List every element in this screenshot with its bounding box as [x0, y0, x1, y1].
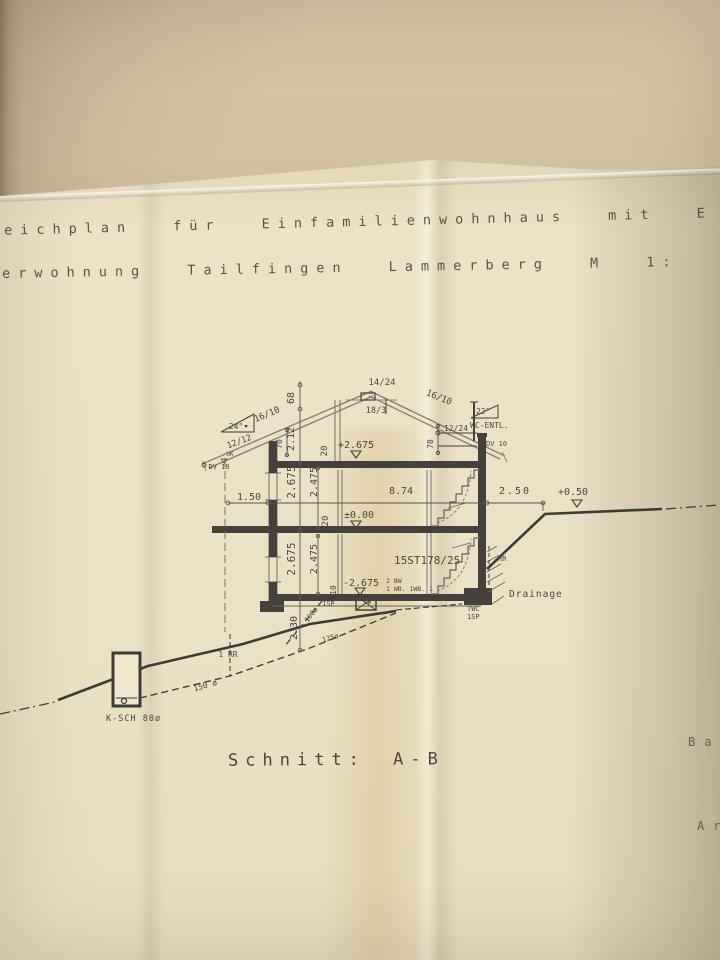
label-ridge-board: 18/3: [366, 406, 386, 416]
drawing-labels: 14/24 16/10 18/3 16/10 24° 12/12 22° WC-…: [106, 378, 588, 724]
label-level-terrain: +0.50: [558, 487, 588, 498]
label-dim-70-left: 70: [275, 439, 284, 449]
label-slab-20-upper: 20: [320, 446, 330, 457]
label-dim-68: 68: [286, 392, 297, 404]
label-dim-212: 2.12: [286, 427, 297, 451]
label-rafter-right: 16/10: [424, 388, 453, 407]
label-drainage: Drainage: [509, 589, 563, 600]
label-dim-150: 1.50: [237, 492, 261, 503]
label-stair-note: 15ST178/25: [394, 554, 460, 567]
label-note-wb: 1 WB. 1WB. 1: [386, 585, 433, 593]
label-roof-angle-right: 22°: [476, 407, 490, 416]
label-pipe-125: 125ø: [321, 632, 340, 645]
label-rr-left: 1 RR: [218, 650, 237, 659]
label-slab-10: 10: [329, 585, 338, 595]
label-rr-right: RR: [498, 555, 507, 563]
label-shaft: K-SCH 80ø: [106, 714, 161, 724]
label-clear-lower: 2.475: [309, 544, 320, 574]
label-pipe-150: 150 ø: [192, 678, 218, 693]
label-dim-230: 2.30: [289, 616, 300, 640]
label-uk-left: UK: [226, 451, 234, 458]
label-level-upper: +2.675: [338, 440, 374, 451]
section-drawing: 14/24 16/10 18/3 16/10 24° 12/12 22° WC-…: [0, 0, 720, 960]
label-storey-upper: 2.675: [285, 465, 298, 498]
label-level-zero: ±0.00: [344, 510, 374, 521]
label-note-sp-right: 1SP: [467, 613, 480, 621]
label-vent-pipe: WC-ENTL.: [470, 421, 509, 430]
label-rafter-left: 16/10: [253, 405, 282, 425]
label-storey-lower: 2.675: [285, 542, 298, 575]
label-dim-70-right: 70: [426, 439, 435, 449]
label-note-tw: TW: [364, 599, 372, 606]
label-note-bw: 2 BW: [386, 577, 402, 585]
label-note-twc: TWC: [467, 605, 480, 613]
label-clear-upper: 2.475: [309, 467, 320, 497]
label-dv10-right: DV 10: [486, 440, 507, 448]
label-dim-874: 8.74: [389, 486, 413, 497]
label-roof-angle-left: 24°: [229, 422, 243, 431]
inspection-shaft: [113, 653, 140, 706]
label-purlin-right: 12/24: [444, 424, 468, 433]
label-slab-20-lower: 20: [321, 516, 331, 527]
label-dv10-left: DV 10: [208, 463, 229, 471]
floor-slabs: [212, 461, 492, 612]
section-caption: Schnitt: A-B: [228, 749, 445, 771]
label-pipe-100: 100ø: [303, 605, 320, 624]
label-ridge-beam: 14/24: [368, 378, 395, 388]
photographed-plan-sheet: eichplan für Einfamilienwohnhaus mit E e…: [0, 0, 720, 960]
caption-right-top-truncated: Bau: [688, 735, 720, 749]
label-note-sp-left: 1SP: [322, 600, 335, 608]
label-level-basement: -2.675: [343, 578, 379, 589]
caption-right-bottom-truncated: Ar: [697, 819, 720, 833]
label-dim-250: 2.50: [499, 486, 531, 497]
